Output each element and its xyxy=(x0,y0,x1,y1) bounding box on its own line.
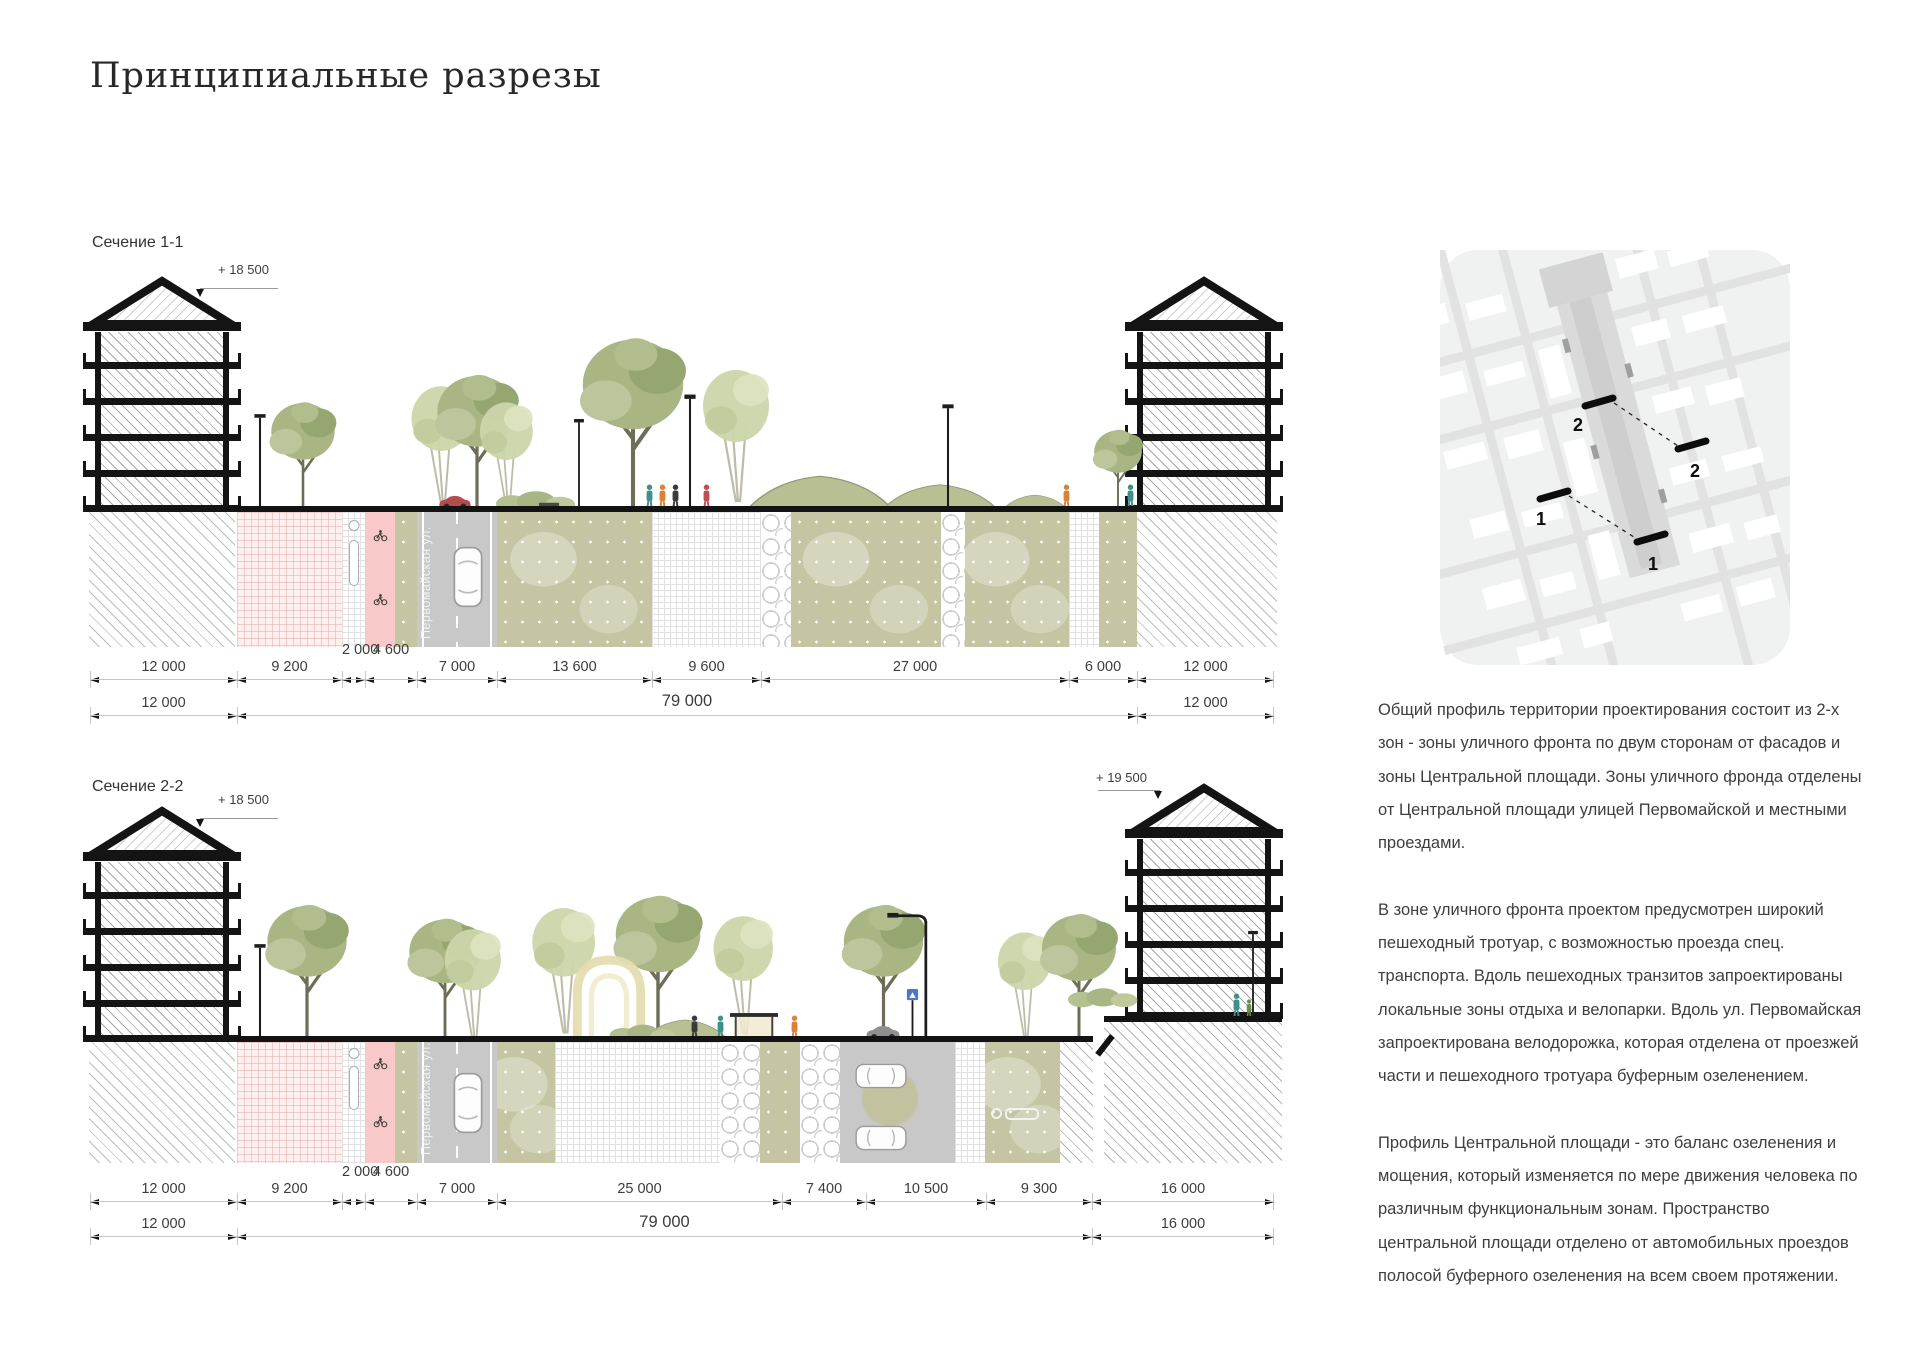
dimension-segment: 6 000 xyxy=(1069,652,1137,688)
buffer-green-plan xyxy=(1099,512,1137,647)
street-plan: Первомайская ул. xyxy=(417,1042,497,1163)
paving-plan xyxy=(652,512,761,647)
dimension-row: 12 000 79 000 12 000 xyxy=(90,688,1274,724)
dimension-segment: 79 000 xyxy=(237,1209,1092,1245)
presentation-sheet: Принципиальные разрезы Сечение 1-1 + 18 … xyxy=(0,0,1920,1358)
terrace-hatch xyxy=(1104,1022,1282,1163)
bike-lane-plan xyxy=(365,1042,395,1163)
description-paragraph: В зоне уличного фронта проектом предусмо… xyxy=(1378,894,1866,1094)
dimension-segment: 9 300 xyxy=(986,1174,1092,1210)
dimension-segment: 12 000 xyxy=(90,688,237,724)
dimension-segment: 12 000 xyxy=(90,1174,237,1210)
street-plan: Первомайская ул. xyxy=(417,512,497,647)
buffer-green-plan xyxy=(395,512,417,647)
dimension-segment: 12 000 xyxy=(1137,688,1274,724)
ground-line xyxy=(237,506,1137,512)
lawn-plan xyxy=(760,1042,800,1163)
description-column: Общий профиль территории проектирования … xyxy=(1378,694,1866,1326)
cobble-strip-plan xyxy=(800,1042,840,1163)
sidewalk-plan xyxy=(237,1042,342,1163)
bike-lane-plan xyxy=(365,512,395,647)
dimension-segment: 12 000 xyxy=(90,1209,237,1245)
dimension-segment: 27 000 xyxy=(761,652,1069,688)
building-footprint-hatch xyxy=(1131,512,1277,647)
paving-plan xyxy=(955,1042,985,1163)
roof xyxy=(83,802,241,862)
building-body xyxy=(95,332,229,512)
dimension-segment: 7 000 xyxy=(417,1174,497,1210)
dimension-segment: 4 600 xyxy=(365,1174,417,1210)
lawn-plan xyxy=(965,512,1069,647)
building-footprint-hatch xyxy=(89,512,235,647)
dimension-segment: 9 200 xyxy=(237,1174,342,1210)
map-marker-2-right: 2 xyxy=(1690,461,1700,481)
dimension-segment: 2 000 xyxy=(342,652,365,688)
map-marker-1-left: 1 xyxy=(1536,509,1546,529)
dimension-segment: 7 000 xyxy=(417,652,497,688)
building-body xyxy=(95,862,229,1042)
dimension-segment: 79 000 xyxy=(237,688,1137,724)
roof xyxy=(1125,779,1283,839)
lawn-plan xyxy=(791,512,941,647)
lawn-plan xyxy=(985,1042,1060,1163)
dimension-row: 12 000 9 200 2 000 4 600 7 000 13 600 9 … xyxy=(90,652,1274,688)
ground-line-elevated xyxy=(1104,1016,1282,1022)
dimension-row: 12 000 9 200 2 000 4 600 7 000 25 000 7 … xyxy=(90,1174,1274,1210)
map-marker-2-left: 2 xyxy=(1573,415,1583,435)
dimension-segment: 16 000 xyxy=(1092,1174,1274,1210)
ground-line xyxy=(237,1036,1093,1042)
description-paragraph: Общий профиль территории проектирования … xyxy=(1378,694,1866,861)
paving-plan xyxy=(1069,512,1099,647)
dimension-segment: 12 000 xyxy=(90,652,237,688)
sidewalk-plan xyxy=(237,512,342,647)
building-section-1-left xyxy=(83,272,241,647)
map-marker-1-right: 1 xyxy=(1648,554,1658,574)
cobble-strip-plan xyxy=(761,512,791,647)
dimension-segment: 10 500 xyxy=(866,1174,986,1210)
page-title: Принципиальные разрезы xyxy=(90,56,602,96)
dimension-segment: 9 600 xyxy=(652,652,761,688)
roof xyxy=(1125,272,1283,332)
dimension-row: 12 000 79 000 16 000 xyxy=(90,1209,1274,1245)
dimension-segment: 2 000 xyxy=(342,1174,365,1210)
cobble-strip-plan xyxy=(941,512,965,647)
dimension-segment: 13 600 xyxy=(497,652,652,688)
dimension-segment: 25 000 xyxy=(497,1174,782,1210)
section-1-label: Сечение 1-1 xyxy=(92,234,183,252)
dimension-segment: 7 400 xyxy=(782,1174,866,1210)
buffer-green-plan xyxy=(395,1042,417,1163)
slope-hatch xyxy=(1060,1042,1093,1163)
furniture-strip-plan xyxy=(342,512,365,647)
roof xyxy=(83,272,241,332)
furniture-strip-plan xyxy=(342,1042,365,1163)
dimension-segment: 12 000 xyxy=(1137,652,1274,688)
street-name-label: Первомайская ул. xyxy=(419,520,433,639)
location-map: 2 2 1 1 xyxy=(1440,250,1790,665)
street-name-label: Первомайская ул. xyxy=(419,1050,433,1155)
lawn-plan xyxy=(497,512,652,647)
dimension-segment: 4 600 xyxy=(365,652,417,688)
dimension-segment: 16 000 xyxy=(1092,1209,1274,1245)
parking-plan xyxy=(840,1042,955,1163)
building-section-2-left xyxy=(83,802,241,1163)
cobble-strip-plan xyxy=(720,1042,760,1163)
building-footprint-hatch xyxy=(89,1042,235,1163)
lawn-plan xyxy=(497,1042,555,1163)
plaza-paving-plan xyxy=(555,1042,720,1163)
section-2-label: Сечение 2-2 xyxy=(92,778,183,796)
dimension-segment: 9 200 xyxy=(237,652,342,688)
description-paragraph: Профиль Центральной площади - это баланс… xyxy=(1378,1127,1866,1294)
